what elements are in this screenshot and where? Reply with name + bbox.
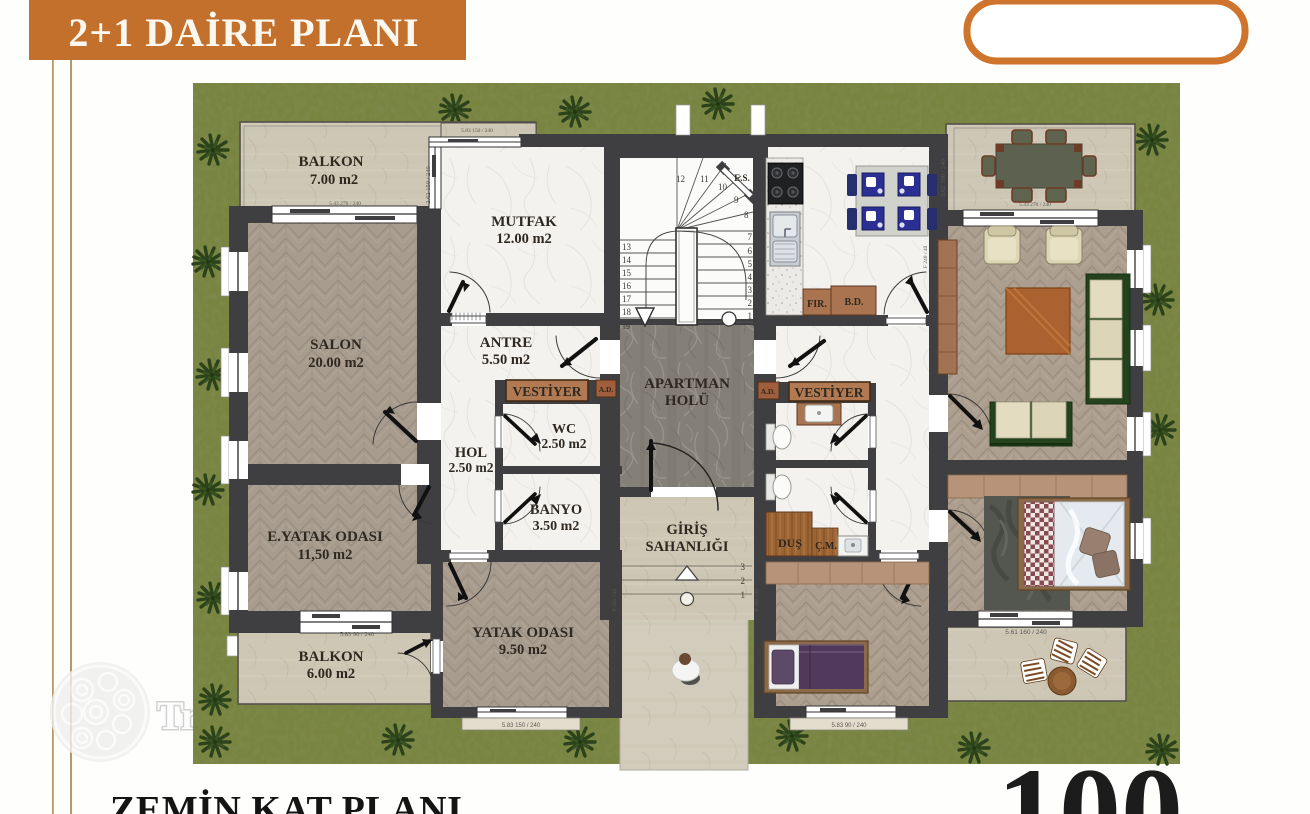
svg-text:6: 6 [748,246,753,256]
svg-text:SAHANLIĞI: SAHANLIĞI [646,538,729,555]
svg-text:Ç.M.: Ç.M. [815,541,837,552]
svg-text:20.00 m2: 20.00 m2 [308,355,364,371]
svg-text:100: 100 [997,743,1183,814]
svg-text:3: 3 [741,562,746,572]
svg-text:7.00 m2: 7.00 m2 [310,172,358,188]
svg-text:10: 10 [718,182,728,192]
svg-text:5.83 150 / 240: 5.83 150 / 240 [502,723,541,729]
svg-text:5.83 150 / 240: 5.83 150 / 240 [461,128,493,134]
svg-text:11: 11 [700,174,709,184]
svg-text:5.50 m2: 5.50 m2 [482,352,530,368]
svg-text:ANTRE: ANTRE [480,335,533,351]
svg-text:BALKON: BALKON [298,154,363,170]
svg-text:P 240 / 40: P 240 / 40 [754,589,760,612]
svg-text:VESTİYER: VESTİYER [794,385,863,400]
svg-text:BALKON: BALKON [298,649,363,665]
svg-text:4: 4 [748,272,753,282]
svg-text:WC: WC [552,422,576,437]
svg-text:6.00 m2: 6.00 m2 [307,666,355,682]
svg-text:BANYO: BANYO [530,502,582,518]
svg-text:A.D.: A.D. [599,385,614,394]
svg-text:ZEMİN KAT PLANI: ZEMİN KAT PLANI [110,789,462,814]
svg-text:YATAK ODASI: YATAK ODASI [472,625,574,641]
svg-text:13: 13 [622,242,632,252]
svg-text:12: 12 [676,174,685,184]
svg-text:7: 7 [748,232,753,242]
svg-text:5.83 90 / 240: 5.83 90 / 240 [340,631,374,638]
svg-text:5.43 270 / 240: 5.43 270 / 240 [1019,202,1051,208]
svg-text:APARTMAN: APARTMAN [644,376,730,392]
svg-text:16: 16 [622,281,632,291]
svg-text:2: 2 [741,576,746,586]
svg-text:E.YATAK ODASI: E.YATAK ODASI [267,529,383,545]
svg-text:E.S.: E.S. [734,173,750,183]
svg-text:1: 1 [741,590,746,600]
svg-text:17: 17 [622,294,632,304]
svg-text:2+1 DAİRE PLANI: 2+1 DAİRE PLANI [68,10,419,55]
svg-text:GİRİŞ: GİRİŞ [666,521,707,538]
svg-text:19: 19 [622,322,630,331]
svg-text:3.50 m2: 3.50 m2 [533,519,580,534]
svg-text:2.62 150 / 240: 2.62 150 / 240 [425,166,432,204]
svg-text:P 240 / 40: P 240 / 40 [612,589,618,612]
svg-text:FIR.: FIR. [807,299,827,310]
svg-text:1: 1 [748,311,753,321]
svg-text:DUŞ: DUŞ [778,536,802,550]
svg-text:18: 18 [622,307,632,317]
svg-text:2.50 m2: 2.50 m2 [542,436,587,451]
svg-text:14: 14 [622,255,632,265]
svg-text:5.83 90 / 240: 5.83 90 / 240 [831,723,867,729]
svg-text:2.50 m2: 2.50 m2 [449,460,494,475]
svg-text:5.61 160 / 240: 5.61 160 / 240 [1005,629,1047,636]
svg-text:5.43 270 / 240: 5.43 270 / 240 [329,201,361,207]
svg-text:9: 9 [734,195,739,205]
svg-text:3: 3 [748,285,753,295]
svg-text:B.D.: B.D. [845,297,864,308]
svg-text:5: 5 [748,259,753,269]
svg-text:HOLÜ: HOLÜ [665,392,709,409]
svg-text:F 240 / 40: F 240 / 40 [923,246,929,269]
svg-text:MUTFAK: MUTFAK [491,214,557,230]
svg-text:12.00 m2: 12.00 m2 [496,231,552,247]
svg-text:11,50 m2: 11,50 m2 [298,547,353,563]
svg-text:2: 2 [748,298,753,308]
svg-text:HOL: HOL [455,445,488,461]
svg-text:8: 8 [744,210,749,220]
svg-text:9.50 m2: 9.50 m2 [499,642,547,658]
svg-text:SALON: SALON [310,337,362,353]
svg-text:A.D.: A.D. [761,387,776,396]
svg-text:VESTİYER: VESTİYER [512,384,581,399]
svg-text:15: 15 [622,268,632,278]
svg-text:5.62 100 / 240: 5.62 100 / 240 [940,159,947,197]
